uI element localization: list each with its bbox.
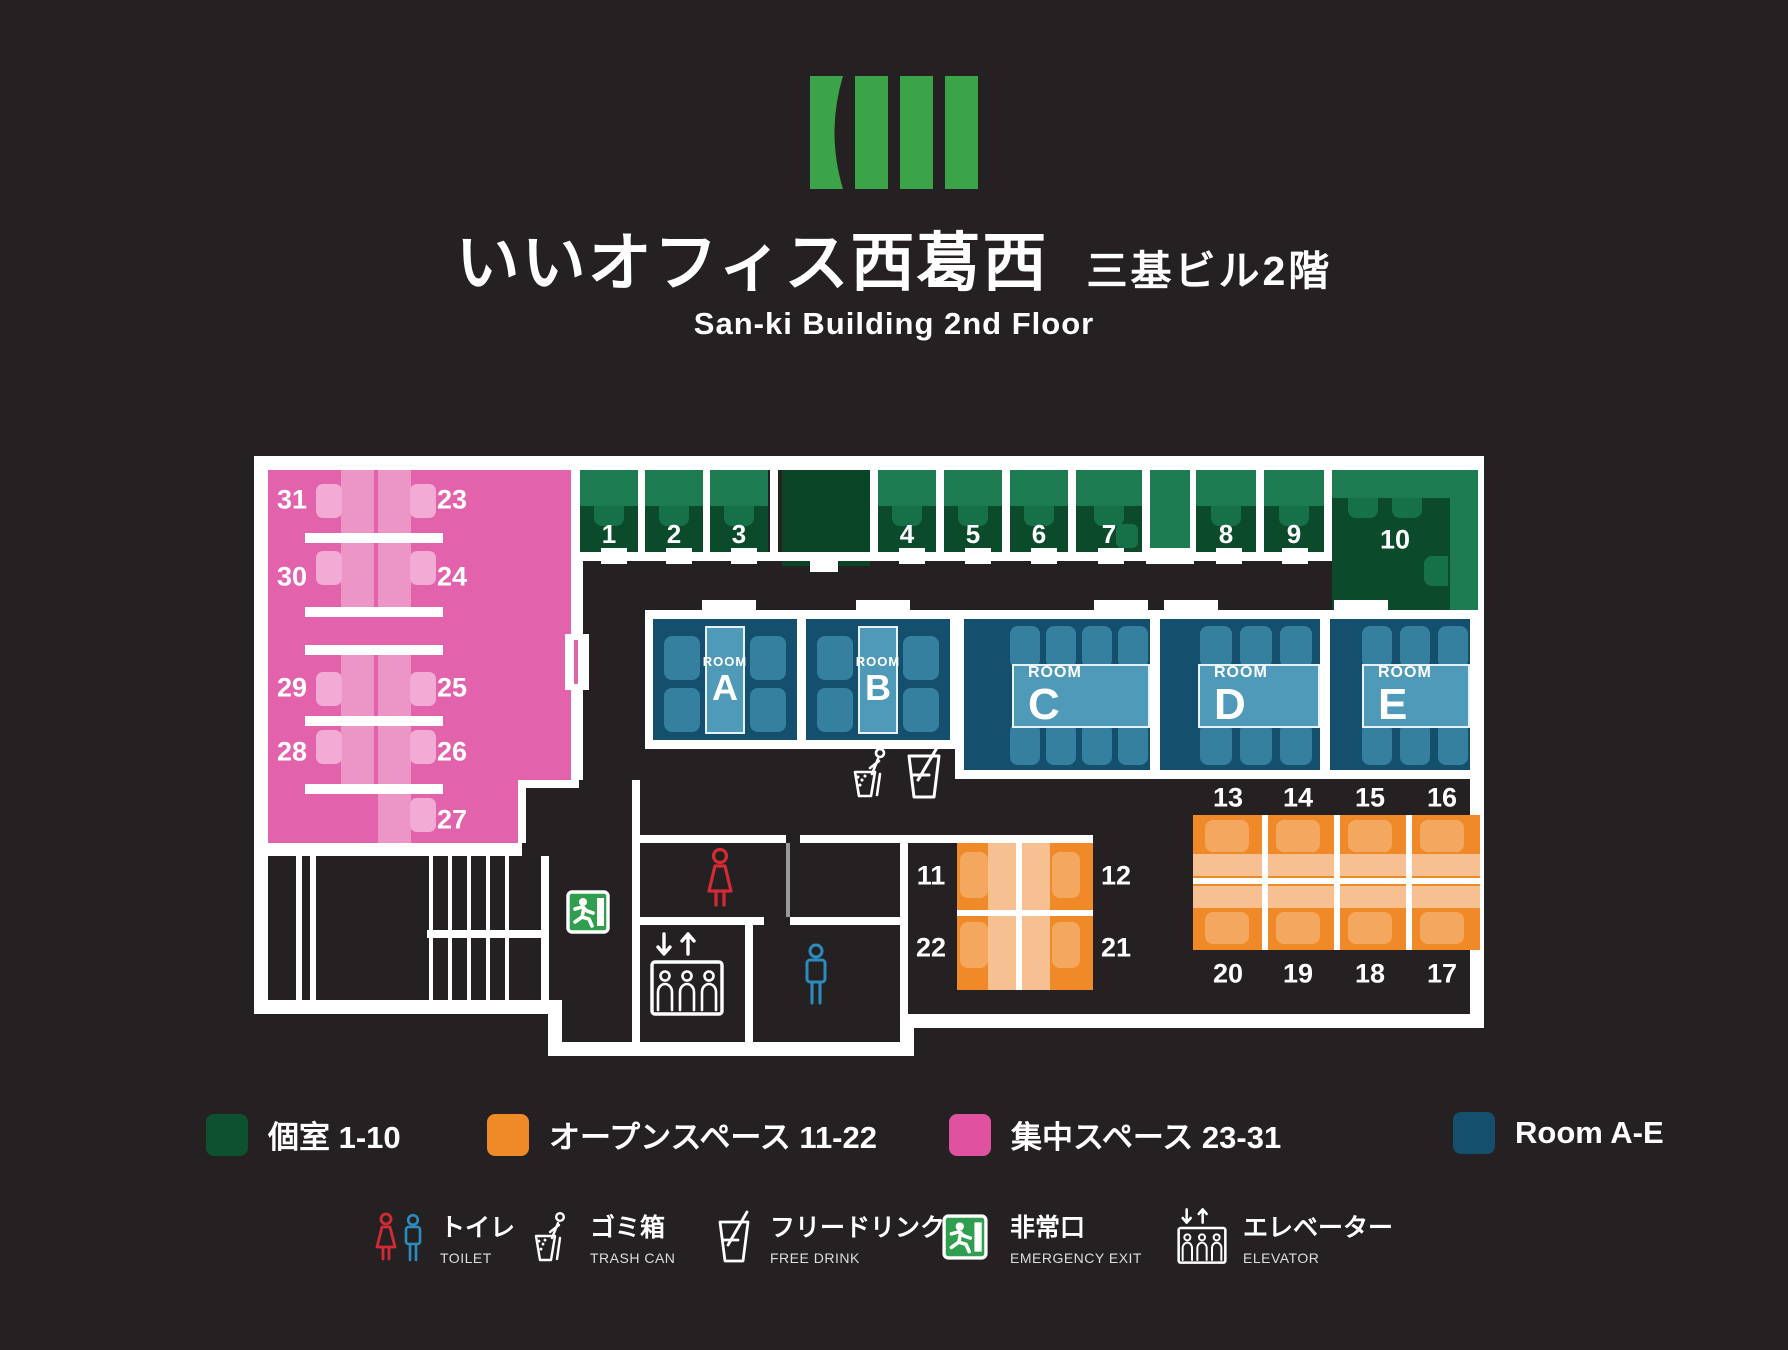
booth-wall (703, 466, 710, 561)
booth-door (601, 548, 627, 564)
facility-en-label: EMERGENCY EXIT (1010, 1250, 1142, 1266)
booth-door (810, 558, 838, 572)
booth-wall (573, 466, 580, 561)
focus-desk-divider (305, 716, 443, 726)
toilet-male-icon (800, 944, 832, 1006)
elevator-icon (648, 930, 726, 1018)
booth-door (1031, 548, 1057, 564)
room-a: ROOMA (653, 619, 797, 740)
legend-zone-open: オープンスペース 11-22 (487, 1112, 877, 1157)
room-wall (955, 610, 964, 779)
open-divider (1016, 843, 1022, 990)
open-seat-label: 18 (1355, 959, 1385, 990)
room-chair (1118, 626, 1148, 668)
stair-tread (467, 938, 471, 1002)
room-chair (750, 688, 786, 732)
booth-wall (936, 466, 944, 561)
focus-seat (410, 730, 436, 764)
booth-label: 1 (580, 519, 638, 550)
room-chair (1200, 626, 1232, 668)
booth-1: 1 (580, 470, 638, 552)
open-seat (1420, 912, 1464, 944)
booth-4: 4 (878, 470, 936, 552)
room-chair (1400, 723, 1430, 765)
booth-8: 8 (1196, 470, 1256, 552)
stair-tread (467, 856, 471, 932)
focus-zone (268, 470, 583, 856)
open-seat-label: 15 (1355, 783, 1385, 814)
stair-tread (448, 938, 452, 1002)
focus-desk-column (341, 470, 374, 617)
legend-zone-rooms: Room A-E (1453, 1112, 1664, 1154)
focus-desk-divider (305, 533, 443, 543)
room-chair (1438, 723, 1468, 765)
legend-swatch-orange (487, 1114, 529, 1156)
open-seat (1276, 912, 1320, 944)
booth-desk (580, 470, 638, 506)
booth-7: 7 (1076, 470, 1142, 552)
wall-top (254, 456, 1484, 470)
room-chair (750, 636, 786, 680)
booth-wall (1190, 466, 1196, 561)
focus-seat-label: 29 (277, 673, 307, 704)
room-letter: A (712, 670, 738, 706)
room-wall (1320, 619, 1330, 770)
room-chair (1280, 723, 1312, 765)
legend-facility-drink: フリードリンク FREE DRINK (770, 1208, 945, 1266)
open-divider (1193, 878, 1480, 884)
emergency-exit-icon (566, 890, 610, 934)
green-corridor-strip (1150, 470, 1190, 552)
focus-desk-column (378, 655, 411, 843)
stair-tread (448, 856, 452, 932)
booth-seat (1424, 556, 1448, 586)
focus-seat (316, 484, 342, 518)
booth-6: 6 (1010, 470, 1068, 552)
open-seat-label: 14 (1283, 783, 1313, 814)
room-door (856, 600, 910, 619)
room-chair (1400, 626, 1430, 668)
core-wall (790, 917, 908, 925)
core-wall (632, 917, 764, 925)
room-chair (1362, 626, 1392, 668)
legend-facility-exit: 非常口 EMERGENCY EXIT (1010, 1208, 1142, 1266)
room-letter: D (1214, 683, 1246, 727)
open-seat-label: 13 (1213, 783, 1243, 814)
booth-label: 9 (1264, 519, 1324, 550)
room-chair (1280, 626, 1312, 668)
core-wall (745, 925, 753, 1042)
legend-facility-trash: ゴミ箱 TRASH CAN (590, 1208, 675, 1266)
exit-icon (942, 1214, 988, 1260)
focus-zone-door-leaf (574, 640, 578, 684)
legend-zone-label: 集中スペース 23-31 (1011, 1112, 1281, 1157)
focus-seat-label: 26 (437, 737, 467, 768)
focus-seat-label: 24 (437, 562, 467, 593)
booth-desk (1196, 470, 1256, 506)
booth-wall (638, 466, 645, 561)
booth-door (731, 548, 757, 564)
booth-desk (710, 470, 768, 506)
open-seat-label: 17 (1427, 959, 1457, 990)
focus-seat (316, 730, 342, 764)
wall-bottom-right (900, 1014, 1484, 1028)
open-seat (1205, 912, 1249, 944)
core-partition (786, 843, 790, 917)
focus-seat (410, 484, 436, 518)
notch-wall-v (518, 780, 526, 843)
room-chair (817, 688, 853, 732)
room-wall (1150, 619, 1160, 770)
booth-desk (1264, 470, 1324, 506)
focus-seat-label: 30 (277, 562, 307, 593)
booth-desk (1076, 470, 1142, 506)
core-wall (632, 780, 640, 1042)
legend-swatch-blue (1453, 1112, 1495, 1154)
focus-desk-divider (305, 607, 443, 617)
booth-wall (1142, 466, 1150, 561)
room-door (1094, 600, 1148, 619)
legend-zone-label: オープンスペース 11-22 (549, 1112, 877, 1157)
focus-desk-divider (305, 645, 443, 655)
room-chair (903, 688, 939, 732)
open-seat (1348, 912, 1392, 944)
room-chair (1438, 626, 1468, 668)
corridor-wall (296, 856, 302, 1002)
booth-door (965, 548, 991, 564)
focus-seat-label: 23 (437, 485, 467, 516)
booth-desk (1010, 470, 1068, 506)
room-chair (664, 636, 700, 680)
room-chair (1046, 723, 1076, 765)
booth-wall (1324, 466, 1332, 561)
booth-seat (1392, 498, 1422, 518)
facility-jp-label: トイレ (440, 1208, 515, 1244)
trash-can-icon (851, 748, 891, 798)
toilet-icon (372, 1212, 430, 1264)
open-seat (1348, 820, 1392, 852)
stair-tread (429, 856, 433, 932)
room-d: ROOMD (1160, 619, 1320, 770)
booth-desk (944, 470, 1002, 506)
room-letter: C (1028, 683, 1060, 727)
open-seat-label: 16 (1427, 783, 1457, 814)
room-chair (1118, 723, 1148, 765)
room-wall (645, 610, 653, 749)
legend-facility-toilet: トイレ TOILET (440, 1208, 515, 1266)
room-chair (1010, 626, 1040, 668)
legend-swatch-green (206, 1114, 248, 1156)
open-seat (1276, 820, 1320, 852)
legend-zone-private: 個室 1-10 (206, 1112, 401, 1157)
stair-tread (505, 856, 509, 932)
facility-en-label: FREE DRINK (770, 1250, 945, 1266)
open-seat (960, 922, 988, 968)
booth-9: 9 (1264, 470, 1324, 552)
open-space-small (957, 843, 1093, 990)
open-seat (960, 852, 988, 898)
room-e: ROOME (1330, 619, 1470, 770)
booth-label: 2 (645, 519, 703, 550)
focus-seat-label: 25 (437, 673, 467, 704)
booth-label: 6 (1010, 519, 1068, 550)
room-word: ROOM (703, 655, 747, 668)
booth-2: 2 (645, 470, 703, 552)
legend-zone-label: 個室 1-10 (268, 1112, 401, 1157)
booth-label: 8 (1196, 519, 1256, 550)
booth-door (1282, 548, 1308, 564)
legend-swatch-pink (949, 1114, 991, 1156)
focus-seat (410, 551, 436, 585)
room-chair (664, 688, 700, 732)
facility-jp-label: フリードリンク (770, 1208, 945, 1244)
room-wall (955, 770, 1484, 779)
room-c-table: ROOMC (1012, 664, 1150, 728)
booth-wall (1068, 466, 1076, 561)
open-seat (1052, 922, 1080, 968)
room-word: ROOM (856, 655, 900, 668)
wall-left (254, 456, 268, 1014)
open-seat (1205, 820, 1249, 852)
stair-tread (505, 938, 509, 1002)
open-seat-label: 20 (1213, 959, 1243, 990)
facility-jp-label: ゴミ箱 (590, 1208, 675, 1244)
elevator-icon (1176, 1206, 1228, 1266)
booth-door (1146, 548, 1194, 564)
focus-seat (316, 551, 342, 585)
room-chair (903, 636, 939, 680)
wall-bottom-center (548, 1042, 914, 1056)
notch-wall-h (518, 780, 579, 788)
booth-desk (878, 470, 936, 506)
open-seat-label: 19 (1283, 959, 1313, 990)
booth-wall (1002, 466, 1010, 561)
booth-seat (1348, 498, 1378, 518)
stair-tread (486, 938, 490, 1002)
facility-en-label: TRASH CAN (590, 1250, 675, 1266)
booth-wall (770, 466, 778, 561)
room-chair (1010, 723, 1040, 765)
room-chair (1362, 723, 1392, 765)
trash-icon (532, 1212, 572, 1262)
stair-tread (486, 856, 490, 932)
legend-zone-focus: 集中スペース 23-31 (949, 1112, 1281, 1157)
focus-seat (410, 798, 436, 832)
wall-bottom-left (254, 1000, 560, 1014)
booth-label: 4 (878, 519, 936, 550)
booth-3: 3 (710, 470, 768, 552)
stair-tread (429, 938, 433, 1002)
corridor-wall (310, 856, 316, 1002)
booth-door (1098, 548, 1124, 564)
room-chair (817, 636, 853, 680)
focus-seat (316, 672, 342, 706)
room-word: ROOM (1378, 665, 1432, 681)
stair-side-wall (541, 856, 549, 1002)
open-seat-label: 11 (917, 861, 946, 892)
focus-desk-column (378, 470, 411, 617)
open-seat-label: 12 (1101, 861, 1131, 892)
room-word: ROOM (1214, 665, 1268, 681)
room-chair (1200, 723, 1232, 765)
core-wall (900, 835, 908, 1028)
booth-label: 5 (944, 519, 1002, 550)
open-seat-label: 22 (916, 933, 946, 964)
floor-map-page: { "header": { "title": "いいオフィス西葛西", "ann… (0, 0, 1788, 1350)
room-door (702, 600, 756, 619)
room-chair (1046, 626, 1076, 668)
open-seat-label: 21 (1101, 933, 1131, 964)
core-wall (632, 835, 786, 843)
booth-wall (1256, 466, 1264, 561)
room-letter: E (1378, 683, 1407, 727)
booth-label: 10 (1380, 525, 1410, 556)
room-word: ROOM (1028, 665, 1082, 681)
focus-seat (410, 672, 436, 706)
open-divider (957, 910, 1093, 916)
room-b: ROOMB (806, 619, 950, 740)
booth-5: 5 (944, 470, 1002, 552)
open-seat (1420, 820, 1464, 852)
free-drink-icon (905, 744, 943, 800)
facility-jp-label: エレベーター (1243, 1208, 1393, 1244)
open-space-large (1193, 815, 1480, 950)
room-chair (1082, 723, 1112, 765)
legend-zone-label: Room A-E (1515, 1115, 1664, 1151)
legend-facility-elevator: エレベーター ELEVATOR (1243, 1208, 1393, 1266)
booth-label: 7 (1076, 519, 1142, 550)
stair-landing (427, 930, 545, 938)
booth-label: 3 (710, 519, 768, 550)
open-seat (1052, 852, 1080, 898)
focus-zone-bottom-wall (268, 843, 522, 856)
core-wall (800, 835, 908, 843)
toilet-female-icon (702, 848, 738, 908)
focus-seat-label: 28 (277, 737, 307, 768)
facility-jp-label: 非常口 (1010, 1208, 1142, 1244)
room-c: ROOMC (964, 619, 1150, 770)
facility-en-label: ELEVATOR (1243, 1250, 1393, 1266)
room-wall (797, 619, 806, 740)
room-chair (1240, 723, 1272, 765)
room-chair (1082, 626, 1112, 668)
room-chair (1240, 626, 1272, 668)
booth-door (1216, 548, 1242, 564)
focus-desk-divider (305, 784, 443, 794)
room-b-table: ROOMB (858, 626, 898, 734)
focus-seat-label: 31 (277, 485, 307, 516)
room-door (1334, 600, 1388, 619)
booth-desk (645, 470, 703, 506)
booth-door (666, 548, 692, 564)
room-e-table: ROOME (1362, 664, 1470, 728)
booth-wall (870, 466, 878, 561)
room-d-table: ROOMD (1198, 664, 1320, 728)
booth-door (899, 548, 925, 564)
focus-seat-label: 27 (437, 805, 467, 836)
room-a-table: ROOMA (705, 626, 745, 734)
room-door (1164, 600, 1218, 619)
room-letter: B (865, 670, 891, 706)
drink-icon (716, 1210, 752, 1264)
facility-en-label: TOILET (440, 1250, 515, 1266)
